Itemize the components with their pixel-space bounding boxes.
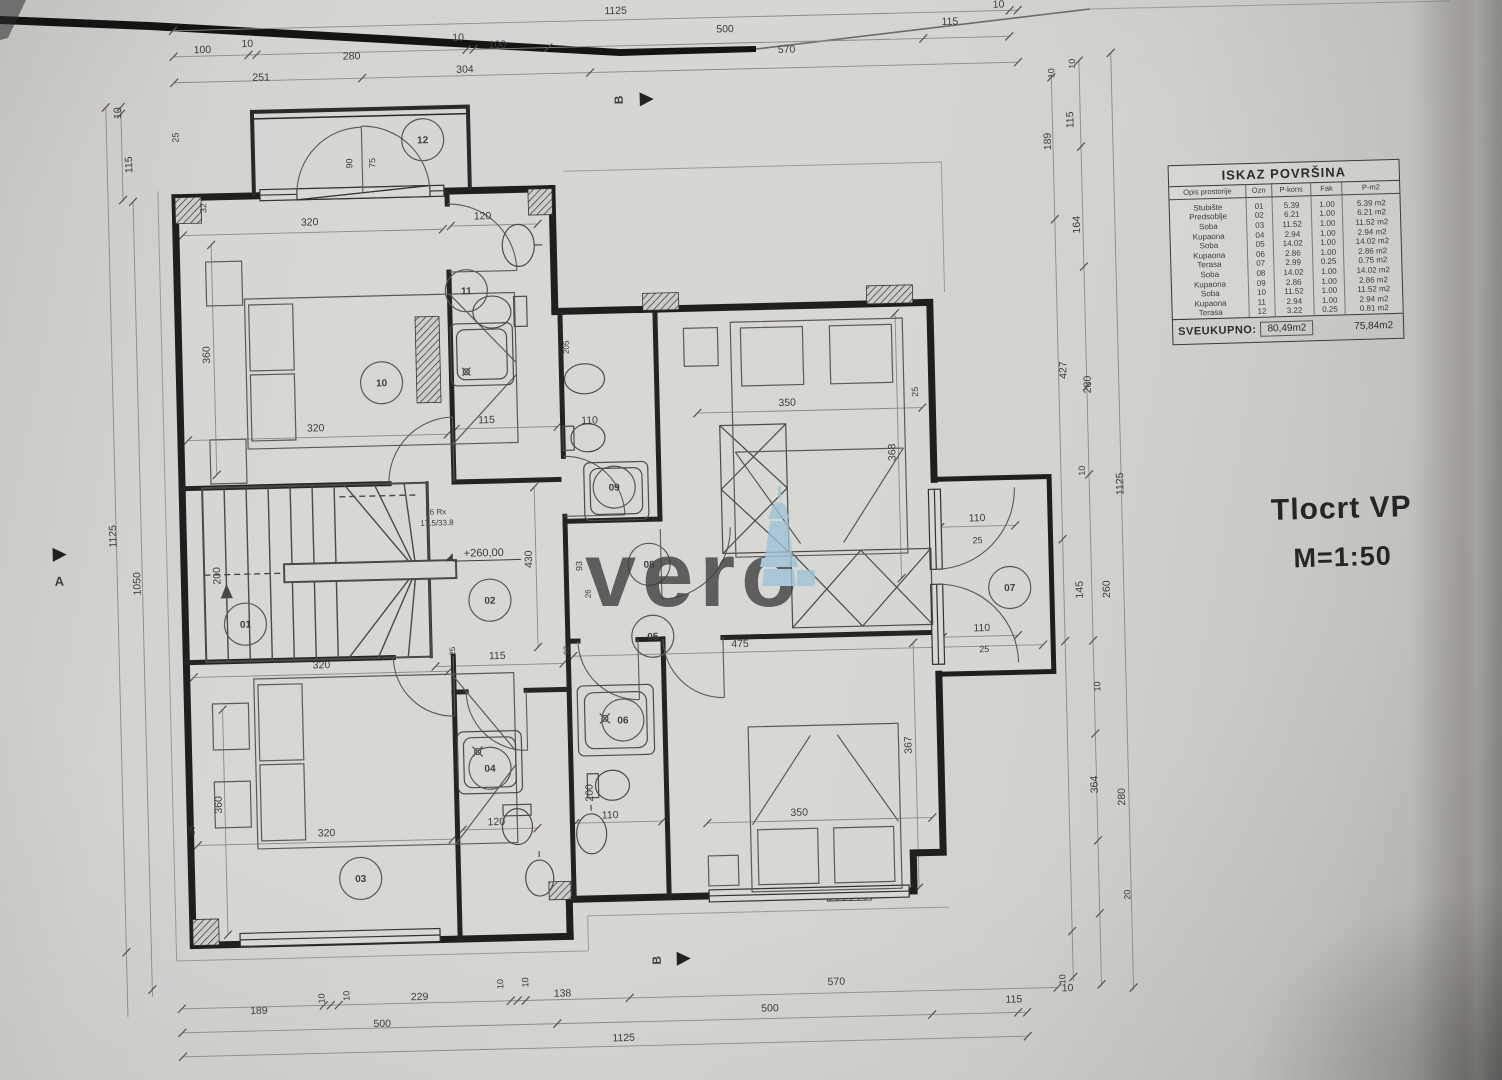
dimension-label: 251	[252, 71, 270, 83]
dimension-label: 10	[452, 32, 464, 44]
dimension-label: 427	[1057, 361, 1069, 379]
svg-text:07: 07	[1004, 583, 1016, 594]
dimension-label: 20	[1122, 890, 1132, 900]
dimension-label: 10	[112, 107, 124, 119]
dimension-label: 120	[474, 210, 492, 222]
dimension-label: 320	[301, 216, 319, 228]
dimension-label: 115	[478, 414, 495, 426]
dimension-label: 200	[583, 784, 595, 802]
title-block: Tlocrt VP M=1:50	[1251, 490, 1433, 576]
dimension-label: 570	[827, 976, 845, 988]
area-table-grid: Opis prostorije Ozn P-kons Fak P-m2 Stub…	[1169, 181, 1403, 319]
stair-note-line1: 16 Rx	[425, 507, 446, 517]
dimension-label: 10	[341, 991, 351, 1001]
dimension-label: 92	[562, 645, 571, 655]
cell-ozn: 12	[1249, 306, 1275, 316]
dimension-label: 138	[554, 987, 572, 999]
dimension-label: 1125	[1114, 472, 1127, 495]
dimension-label: 115	[1064, 111, 1076, 128]
dimension-label: 10	[1057, 974, 1067, 984]
dimension-label: 120	[487, 816, 505, 828]
dimension-label: 229	[411, 991, 429, 1003]
dimension-label: 570	[778, 44, 796, 56]
dimension-label: 100	[193, 44, 211, 56]
drawing-title: Tlocrt VP	[1251, 490, 1432, 529]
area-table: ISKAZ POVRŠINA Opis prostorije Ozn P-kon…	[1168, 159, 1405, 345]
svg-text:05: 05	[647, 632, 659, 643]
dimension-label: 25	[972, 535, 982, 545]
dimension-label: 368	[886, 443, 898, 461]
svg-text:01: 01	[240, 620, 252, 631]
dimension-label: 360	[201, 346, 213, 364]
dimension-label: 115	[1005, 993, 1022, 1005]
cell-pkons: 5.39	[1271, 195, 1311, 210]
dimension-label: 500	[716, 23, 734, 35]
scanned-floor-plan-page: 16 Rx 17.5/33.8 +260,00 A B B 1125101001…	[0, 0, 1502, 1080]
dimension-label: 350	[790, 806, 808, 818]
dimension-label: 500	[761, 1002, 779, 1014]
dimension-label: 475	[731, 638, 749, 650]
col-header-fak: Fak	[1311, 182, 1342, 195]
dimension-label: 110	[973, 622, 990, 634]
dimension-label: 10	[495, 979, 505, 989]
dimension-label: 189	[250, 1005, 268, 1017]
total-kons-value: 80,49m2	[1260, 320, 1313, 336]
dimension-label: 25	[979, 644, 989, 654]
dimension-label: 10	[1046, 68, 1056, 78]
section-marker-b-top: B	[612, 95, 626, 104]
dimension-label: 25	[448, 646, 457, 656]
dimension-label: 75	[367, 158, 377, 168]
dimension-label: 500	[373, 1018, 391, 1030]
dimension-label: 10	[316, 993, 326, 1003]
dimension-label: 25	[186, 825, 196, 835]
svg-text:10: 10	[376, 378, 388, 389]
dimension-label: 90	[344, 158, 354, 168]
svg-text:03: 03	[355, 874, 367, 885]
svg-text:12: 12	[417, 135, 429, 146]
dimension-label: 115	[489, 650, 506, 662]
dimension-label: 10	[241, 38, 253, 50]
section-marker-b-bottom: B	[650, 955, 664, 964]
dimension-label: 1050	[131, 572, 144, 596]
dimension-label: 10	[1092, 681, 1102, 691]
dimension-label: 164	[1071, 216, 1083, 234]
dimension-label: 10	[1067, 59, 1077, 69]
cell-pkons: 3.22	[1275, 305, 1315, 316]
total-label: SVEUKUPNO:	[1173, 323, 1261, 337]
section-marker-a: A	[54, 574, 64, 589]
dimension-label: 189	[1042, 132, 1054, 150]
dimension-label: 260	[1101, 580, 1113, 598]
dimension-label: 25	[170, 133, 180, 143]
stair-note-line2: 17.5/33.8	[420, 518, 454, 528]
dimension-label: 110	[969, 512, 986, 524]
svg-text:11: 11	[461, 286, 472, 297]
dimension-label: 25	[910, 387, 920, 397]
dimension-label: 115	[941, 16, 958, 28]
svg-text:09: 09	[609, 482, 621, 493]
dimension-label: 110	[581, 415, 598, 427]
dimension-label: 10	[520, 977, 530, 987]
svg-text:04: 04	[484, 764, 496, 775]
dimension-label: 1125	[107, 525, 120, 548]
dimension-label: 115	[123, 156, 135, 173]
dimension-label: 320	[307, 422, 325, 434]
dimension-label: 93	[574, 561, 584, 571]
dimension-label: 360	[213, 796, 225, 814]
dimension-label: 320	[313, 659, 331, 671]
dimension-label: 367	[902, 736, 914, 754]
cell-ozn: 01	[1246, 196, 1272, 211]
dimension-label: 100	[488, 39, 506, 51]
dimension-label: 350	[778, 397, 796, 409]
dimension-label: 145	[1074, 581, 1086, 599]
cell-fak: 0.25	[1314, 304, 1345, 314]
dimension-label: 364	[1088, 775, 1100, 793]
dimension-label: 205	[562, 340, 571, 354]
dimension-label: 110	[602, 809, 619, 821]
total-m2-value: 75,84m2	[1354, 320, 1403, 332]
dimension-label: 280	[1116, 788, 1128, 806]
col-header-pkons: P-kons	[1271, 183, 1311, 196]
dimension-label: 32	[198, 203, 208, 213]
dimension-label: 10	[993, 0, 1005, 11]
dimension-label: 10	[1077, 466, 1087, 476]
level-label: +260,00	[464, 547, 504, 560]
dimension-label: 1125	[612, 1032, 635, 1045]
dimension-label: 280	[343, 50, 361, 62]
drawing-scale: M=1:50	[1252, 539, 1433, 575]
dimension-label: 1125	[604, 5, 627, 18]
cell-fak: 1.00	[1311, 194, 1342, 209]
dimension-label: 430	[523, 550, 535, 568]
col-header-ozn: Ozn	[1246, 184, 1272, 197]
dimension-label: 304	[456, 63, 474, 75]
cell-pm2: 0.81 m2	[1345, 303, 1402, 314]
svg-text:02: 02	[484, 596, 496, 607]
dimension-label: 280	[1082, 375, 1094, 393]
svg-text:06: 06	[617, 715, 629, 726]
dimension-label: 200	[211, 567, 223, 585]
dimension-label: 320	[318, 827, 336, 839]
